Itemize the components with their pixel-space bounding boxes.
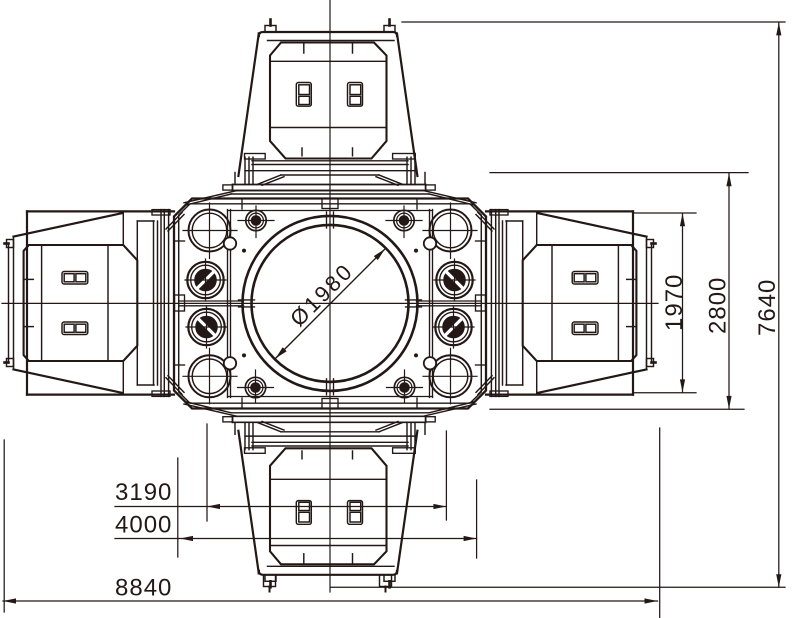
- svg-text:7640: 7640: [754, 279, 781, 336]
- svg-text:8840: 8840: [115, 575, 172, 602]
- svg-text:Ø1980: Ø1980: [285, 258, 358, 331]
- svg-text:1970: 1970: [661, 274, 688, 331]
- svg-text:3190: 3190: [115, 479, 172, 506]
- svg-text:4000: 4000: [115, 512, 172, 539]
- svg-text:2800: 2800: [705, 277, 732, 334]
